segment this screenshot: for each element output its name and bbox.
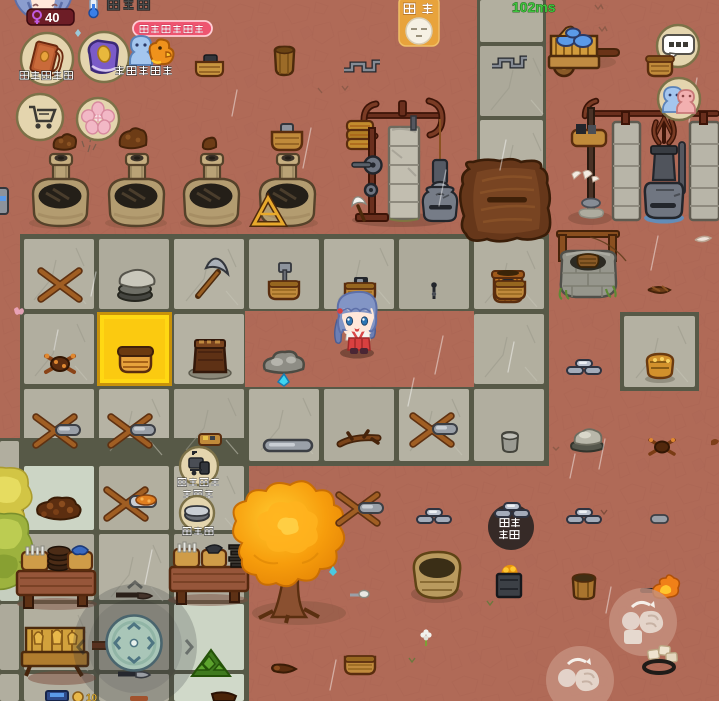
- svg-text:102ms: 102ms: [512, 0, 556, 15]
- svg-text:40: 40: [45, 10, 59, 25]
- svg-text:10: 10: [86, 693, 98, 701]
